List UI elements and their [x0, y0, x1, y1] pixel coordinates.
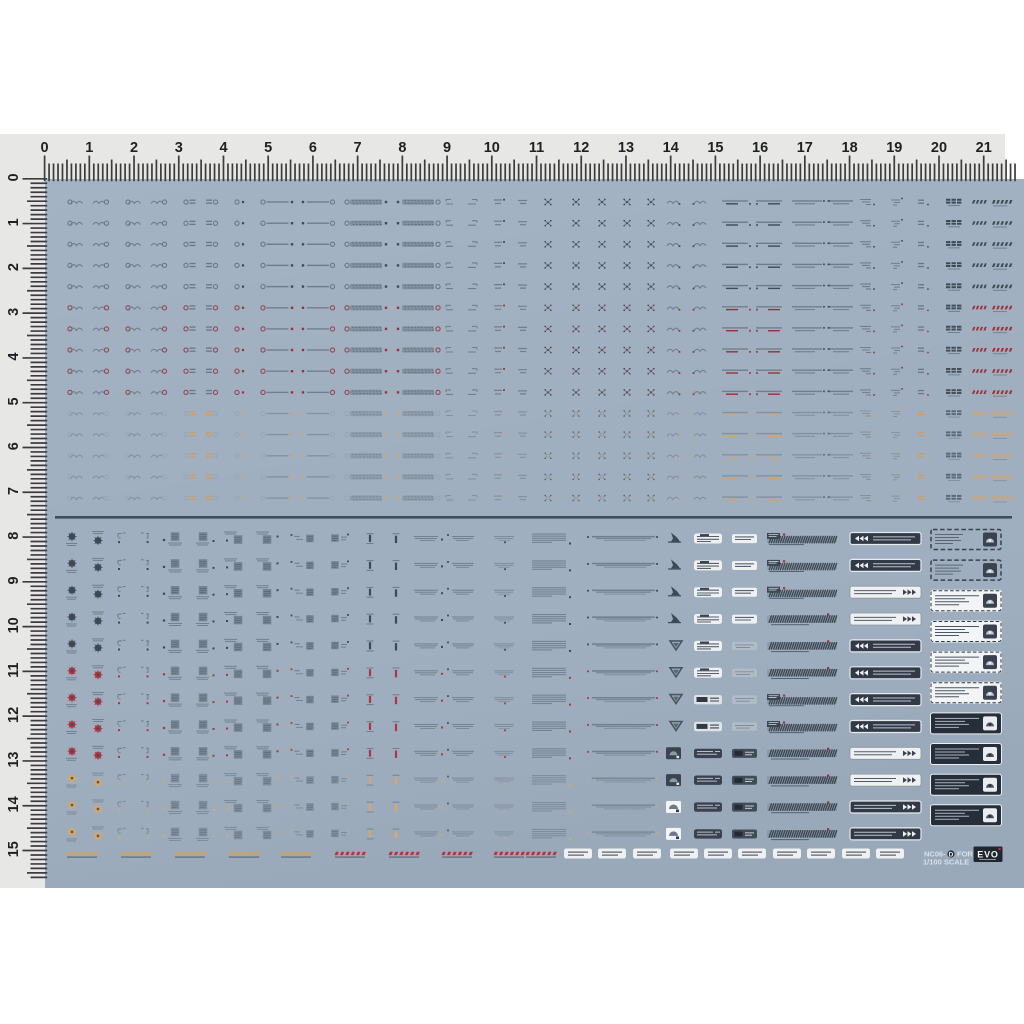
svg-text:0: 0 [6, 173, 22, 181]
svg-text:18: 18 [842, 140, 858, 156]
svg-text:12: 12 [573, 140, 589, 156]
svg-text:6: 6 [309, 140, 317, 156]
svg-text:1/100 SCALE: 1/100 SCALE [923, 858, 969, 867]
svg-text:14: 14 [6, 796, 22, 812]
svg-text:15: 15 [6, 841, 22, 857]
svg-text:16: 16 [752, 140, 768, 156]
svg-text:19: 19 [886, 140, 902, 156]
svg-text:9: 9 [443, 140, 451, 156]
svg-text:11: 11 [529, 140, 544, 156]
svg-text:10: 10 [484, 140, 500, 156]
svg-text:13: 13 [618, 140, 634, 156]
svg-text:5: 5 [6, 397, 22, 405]
svg-text:15: 15 [707, 140, 723, 156]
svg-text:7: 7 [354, 140, 362, 156]
svg-text:21: 21 [976, 140, 992, 156]
svg-text:EVO: EVO [977, 850, 998, 860]
svg-text:12: 12 [6, 707, 22, 723]
svg-text:7: 7 [6, 487, 22, 495]
svg-text:3: 3 [175, 140, 183, 156]
svg-text:1: 1 [6, 218, 22, 226]
svg-text:8: 8 [6, 532, 22, 540]
svg-text:3: 3 [6, 308, 22, 316]
svg-text:13: 13 [6, 752, 22, 768]
svg-text:20: 20 [931, 140, 947, 156]
svg-text:10: 10 [6, 617, 22, 633]
svg-text:9: 9 [6, 576, 22, 584]
svg-text:2: 2 [6, 263, 22, 271]
svg-text:6: 6 [6, 442, 22, 450]
svg-text:2: 2 [130, 140, 138, 156]
svg-text:11: 11 [6, 662, 22, 677]
svg-text:0: 0 [41, 140, 49, 156]
svg-text:5: 5 [264, 140, 272, 156]
svg-text:D: D [949, 852, 954, 859]
svg-text:4: 4 [6, 353, 22, 361]
svg-text:17: 17 [797, 140, 813, 156]
svg-text:1: 1 [85, 140, 93, 156]
svg-text:8: 8 [398, 140, 406, 156]
svg-text:4: 4 [219, 140, 227, 156]
svg-text:14: 14 [663, 140, 679, 156]
